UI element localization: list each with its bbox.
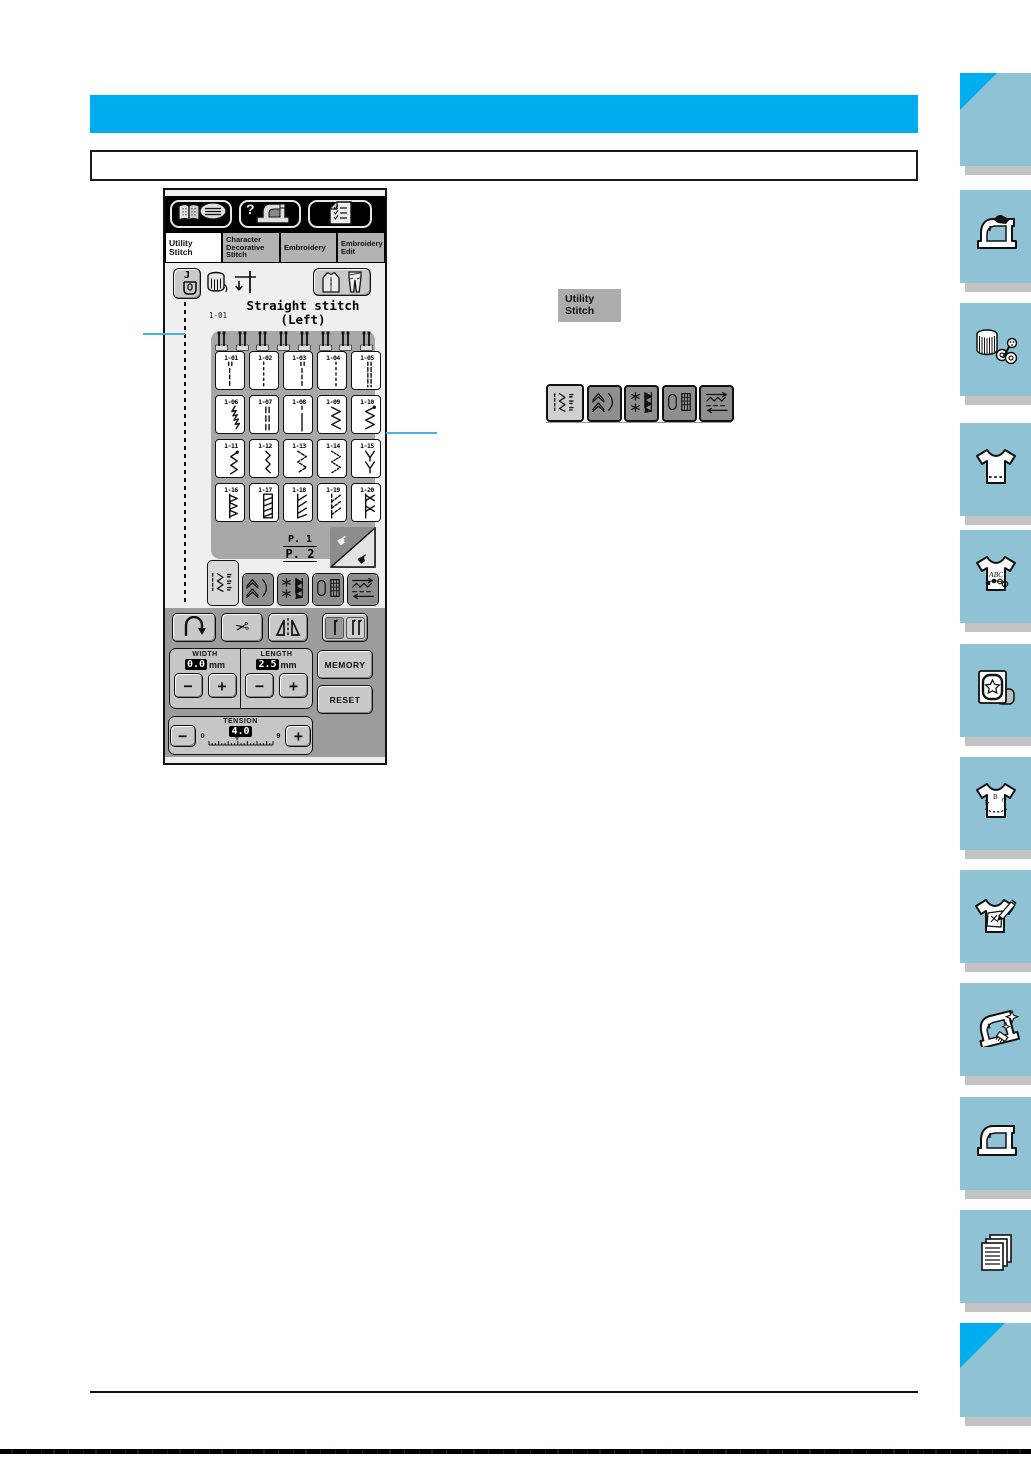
width-control: WIDTH 0.0 mm − +	[170, 649, 241, 708]
scallop-group-icon	[590, 390, 618, 417]
tab-label-line: Stitch	[226, 251, 279, 259]
shirt-abc-arc-icon: ABC	[971, 781, 1021, 826]
tab-label-line: Stitch	[169, 248, 221, 257]
stitch-button-1-05[interactable]: 1-05	[351, 351, 381, 390]
chapter-shirt-abc-flower: ABC	[960, 530, 1031, 623]
tab-label-line: Edit	[341, 248, 384, 256]
lcd-screenshot: ? UtilityStitchCharacterDecorativeStitch…	[163, 188, 387, 765]
stitch-pattern-icon	[324, 448, 340, 476]
buttonhole-group-icon	[665, 390, 693, 417]
lcd-tab-bar: UtilityStitchCharacterDecorativeStitchEm…	[165, 232, 385, 263]
stitch-pattern-icon	[222, 404, 238, 432]
stitch-button-1-14[interactable]: 1-14	[317, 439, 347, 478]
stitch-pattern-icon	[324, 404, 340, 432]
scan-edge-artifact	[0, 1449, 1031, 1454]
tension-plus-button[interactable]: +	[285, 725, 311, 747]
presser-foot-label: J	[180, 270, 194, 281]
stitch-id-label: 1-18	[292, 486, 306, 494]
stitch-pattern-icon	[358, 448, 374, 476]
thread-spool-icon	[971, 327, 1021, 372]
chapter-thread-spool	[960, 303, 1031, 396]
stitch-button-1-18[interactable]: 1-18	[283, 483, 313, 522]
length-control: LENGTH 2.5 mm − +	[241, 649, 312, 708]
satin-group-icon	[628, 390, 656, 417]
stitch-id-label: 1-01	[224, 354, 238, 362]
troubleshooting-button[interactable]: ?	[239, 200, 301, 228]
stitch-preview-line	[184, 302, 186, 604]
category-satin-group[interactable]	[277, 573, 309, 606]
presser-foot-button[interactable]: J	[173, 268, 201, 299]
tension-min: 0	[201, 733, 205, 740]
category-utility-group[interactable]	[207, 560, 239, 606]
stitch-pattern-icon	[358, 492, 374, 520]
buttonhole-group-icon	[314, 576, 342, 603]
length-unit: mm	[281, 660, 297, 670]
pants-icon	[346, 271, 364, 294]
stitch-pattern-icon	[290, 404, 306, 432]
shirt-hem-icon	[971, 447, 1021, 492]
chapter-documents	[960, 1210, 1031, 1303]
stitch-pattern-icon	[324, 492, 340, 520]
width-plus-button[interactable]: +	[208, 673, 237, 698]
width-label: WIDTH	[170, 651, 240, 658]
stitch-button-1-08[interactable]: 1-08	[283, 395, 313, 434]
chapter-embroidery-hoop	[960, 644, 1031, 737]
stitch-pattern-icon	[358, 360, 374, 388]
stitch-id-label: 1-05	[360, 354, 374, 362]
chapter-sewing-machine	[960, 1097, 1031, 1190]
svg-text:ABC: ABC	[988, 570, 1004, 579]
sidebar-square-shadow	[965, 737, 1031, 746]
stitch-pattern-icon	[222, 360, 238, 388]
inline-category-buttonhole-group[interactable]	[662, 385, 697, 422]
inline-utility-line1: Utility	[565, 294, 621, 306]
sidebar-square-shadow	[965, 396, 1031, 405]
sewing-machine-hand-icon	[971, 214, 1021, 259]
stitch-button-1-20[interactable]: 1-20	[351, 483, 381, 522]
stitch-id-label: 1-07	[258, 398, 272, 406]
inline-category-row	[546, 384, 734, 422]
width-minus-button[interactable]: −	[174, 673, 203, 698]
needle-down-icon	[231, 270, 259, 296]
stitch-id-label: 1-08	[292, 398, 306, 406]
tension-max: 9	[277, 733, 281, 740]
tension-panel: TENSION − 0 4.0 9 +	[168, 716, 313, 755]
stitch-pattern-icon	[222, 492, 238, 520]
stitch-pattern-icon	[290, 360, 306, 388]
reverse-arrow-icon	[180, 616, 208, 639]
presser-foot-icon	[180, 281, 200, 296]
stitch-id-label: 1-15	[360, 442, 374, 450]
stitch-button-1-07[interactable]: 1-07	[249, 395, 279, 434]
stitch-button-1-04[interactable]: 1-04	[317, 351, 347, 390]
stitch-button-1-13[interactable]: 1-13	[283, 439, 313, 478]
checklist-icon	[313, 200, 367, 229]
tab-embroidery-edit[interactable]: EmbroideryEdit	[337, 232, 385, 263]
section-header-bar	[90, 95, 918, 133]
length-plus-button[interactable]: +	[279, 673, 308, 698]
inline-category-scallop-group[interactable]	[587, 385, 622, 422]
stitch-button-1-01[interactable]: 1-01	[215, 351, 245, 390]
single-needle-option	[325, 617, 344, 639]
inline-baseline	[546, 422, 731, 424]
sewing-machine-icon	[971, 1121, 1021, 1166]
stitch-pattern-icon	[256, 492, 272, 520]
stitch-button-1-10[interactable]: 1-10	[351, 395, 381, 434]
documents-icon	[971, 1233, 1021, 1280]
mirror-icon	[273, 617, 303, 638]
utility-group-icon	[209, 570, 237, 597]
sidebar-square-shadow	[965, 1076, 1031, 1085]
stitch-button-1-11[interactable]: 1-11	[215, 439, 245, 478]
stitch-button-1-03[interactable]: 1-03	[283, 351, 313, 390]
tab-label-line: Embroidery	[284, 244, 336, 252]
single-needle-icon	[330, 619, 340, 637]
stitch-id-label: 1-09	[326, 398, 340, 406]
sidebar-square-shadow	[965, 1190, 1031, 1199]
stitch-id-label: 1-11	[224, 442, 238, 450]
chapter-shirt-abc-arc: ABC	[960, 757, 1031, 850]
stitch-id-label: 1-12	[258, 442, 272, 450]
tension-label: TENSION	[169, 718, 312, 725]
tab-embroidery[interactable]: Embroidery	[280, 232, 337, 263]
stitch-grid: 1-011-021-031-041-051-061-071-081-091-10…	[215, 351, 381, 522]
memory-button[interactable]: MEMORY	[317, 650, 373, 679]
stitch-id-label: 1-13	[292, 442, 306, 450]
stitch-pattern-icon	[290, 492, 306, 520]
tab-utility-stitch[interactable]: UtilityStitch	[165, 232, 222, 263]
sidebar-square-shadow	[965, 623, 1031, 632]
lcd-top-bar: ?	[165, 196, 385, 232]
tension-minus-button[interactable]: −	[170, 725, 196, 747]
stitch-id-label: 1-19	[326, 486, 340, 494]
selected-stitch-name-line2: (Left)	[223, 312, 383, 327]
stitch-pattern-icon	[290, 448, 306, 476]
width-unit: mm	[209, 660, 225, 670]
mirror-image-button[interactable]	[268, 613, 308, 642]
shirt-abc-flower-icon: ABC	[971, 554, 1021, 599]
shirt-icon	[320, 271, 342, 294]
page-current: P. 1	[283, 534, 317, 547]
callout-line-left	[143, 333, 185, 335]
stitch-id-label: 1-16	[224, 486, 238, 494]
stitch-id-label: 1-20	[360, 486, 374, 494]
stitch-pattern-icon	[256, 448, 272, 476]
inline-utility-line2: Stitch	[565, 306, 621, 318]
thread-cut-button[interactable]: ✂	[221, 613, 263, 642]
chapter-shirt-hem	[960, 423, 1031, 516]
width-length-panel: WIDTH 0.0 mm − + LENGTH 2.5 mm − +	[169, 648, 313, 709]
subsection-title-box	[90, 150, 918, 181]
stitch-id-label: 1-10	[360, 398, 374, 406]
callout-line-right	[386, 432, 437, 434]
corner-triangle-icon	[960, 73, 997, 110]
needle-mode-button[interactable]	[322, 613, 368, 642]
chapter-shirt-pencil	[960, 870, 1031, 963]
inline-category-satin-group[interactable]	[624, 385, 659, 422]
stitch-pattern-icon	[256, 404, 272, 432]
sidebar-square-shadow	[965, 1417, 1031, 1426]
tab-character-decorative-stitch[interactable]: CharacterDecorativeStitch	[222, 232, 280, 263]
stitch-id-label: 1-02	[258, 354, 272, 362]
special-group-icon	[349, 576, 377, 603]
stitch-button-1-17[interactable]: 1-17	[249, 483, 279, 522]
inline-category-special-group[interactable]	[699, 385, 734, 422]
stitch-button-1-09[interactable]: 1-09	[317, 395, 347, 434]
stitch-id-label: 1-03	[292, 354, 306, 362]
category-special-group[interactable]	[347, 573, 379, 606]
manual-page: ? UtilityStitchCharacterDecorativeStitch…	[0, 0, 1031, 1457]
sidebar-square-shadow	[965, 283, 1031, 292]
selected-stitch-name: Straight stitch	[223, 298, 383, 313]
stitch-button-1-12[interactable]: 1-12	[249, 439, 279, 478]
stitch-button-1-16[interactable]: 1-16	[215, 483, 245, 522]
page-indicator: P. 1 P. 2	[283, 534, 317, 562]
svg-text:B: B	[993, 793, 998, 801]
stitch-id-label: 1-17	[258, 486, 272, 494]
question-machine-icon: ?	[243, 200, 297, 229]
settings-button[interactable]	[308, 200, 372, 228]
twin-needle-icon	[349, 619, 363, 637]
stitch-id-label: 1-04	[326, 354, 340, 362]
chapter-machine-maintenance	[960, 983, 1031, 1076]
length-value: 2.5	[256, 659, 278, 670]
reverse-stitch-button[interactable]	[172, 613, 216, 642]
page-corner-marker-bottom	[960, 1323, 1031, 1417]
tension-scale	[208, 737, 274, 746]
sidebar-square-shadow	[965, 1303, 1031, 1312]
sidebar-square-shadow	[965, 516, 1031, 525]
footer-rule	[90, 1391, 918, 1393]
sidebar-square-shadow	[965, 166, 1031, 175]
stitch-id-label: 1-06	[224, 398, 238, 406]
tension-value: 4.0	[229, 726, 251, 737]
machine-maintenance-icon	[971, 1007, 1021, 1052]
svg-text:?: ?	[246, 201, 255, 217]
book-guide-icon	[174, 200, 228, 228]
length-label: LENGTH	[241, 651, 312, 658]
stitch-id-label: 1-14	[326, 442, 340, 450]
bobbin-icon	[205, 270, 229, 296]
stitch-pattern-icon	[324, 360, 340, 388]
chapter-sewing-machine-hand	[960, 190, 1031, 283]
twin-needle-option	[346, 617, 365, 639]
operation-guide-button[interactable]	[170, 200, 232, 228]
scallop-group-icon	[244, 576, 272, 603]
sidebar-square-shadow	[965, 963, 1031, 972]
special-group-icon	[703, 390, 731, 417]
stitch-pattern-icon	[358, 404, 374, 432]
inline-utility-stitch-key: Utility Stitch	[558, 289, 621, 322]
category-buttonhole-group[interactable]	[312, 573, 344, 606]
stitch-pattern-icon	[222, 448, 238, 476]
sewing-type-button[interactable]	[313, 268, 371, 296]
stitch-button-1-02[interactable]: 1-02	[249, 351, 279, 390]
category-scallop-group[interactable]	[242, 573, 274, 606]
stitch-button-1-19[interactable]: 1-19	[317, 483, 347, 522]
length-minus-button[interactable]: −	[245, 673, 274, 698]
lcd-category-row	[207, 560, 379, 606]
utility-group-icon	[551, 390, 579, 417]
scissors-icon: ✂	[233, 616, 251, 638]
corner-triangle-icon	[960, 1323, 1005, 1368]
page-corner-marker-top	[960, 73, 1031, 166]
stitch-pattern-icon	[256, 360, 272, 388]
width-value: 0.0	[185, 659, 207, 670]
inline-category-utility-group[interactable]	[546, 384, 584, 422]
satin-group-icon	[279, 576, 307, 603]
stitch-button-1-15[interactable]: 1-15	[351, 439, 381, 478]
stitch-button-1-06[interactable]: 1-06	[215, 395, 245, 434]
reset-button[interactable]: RESET	[317, 685, 373, 714]
shirt-pencil-icon	[971, 894, 1021, 939]
embroidery-hoop-icon	[971, 668, 1021, 713]
sidebar-square-shadow	[965, 850, 1031, 859]
